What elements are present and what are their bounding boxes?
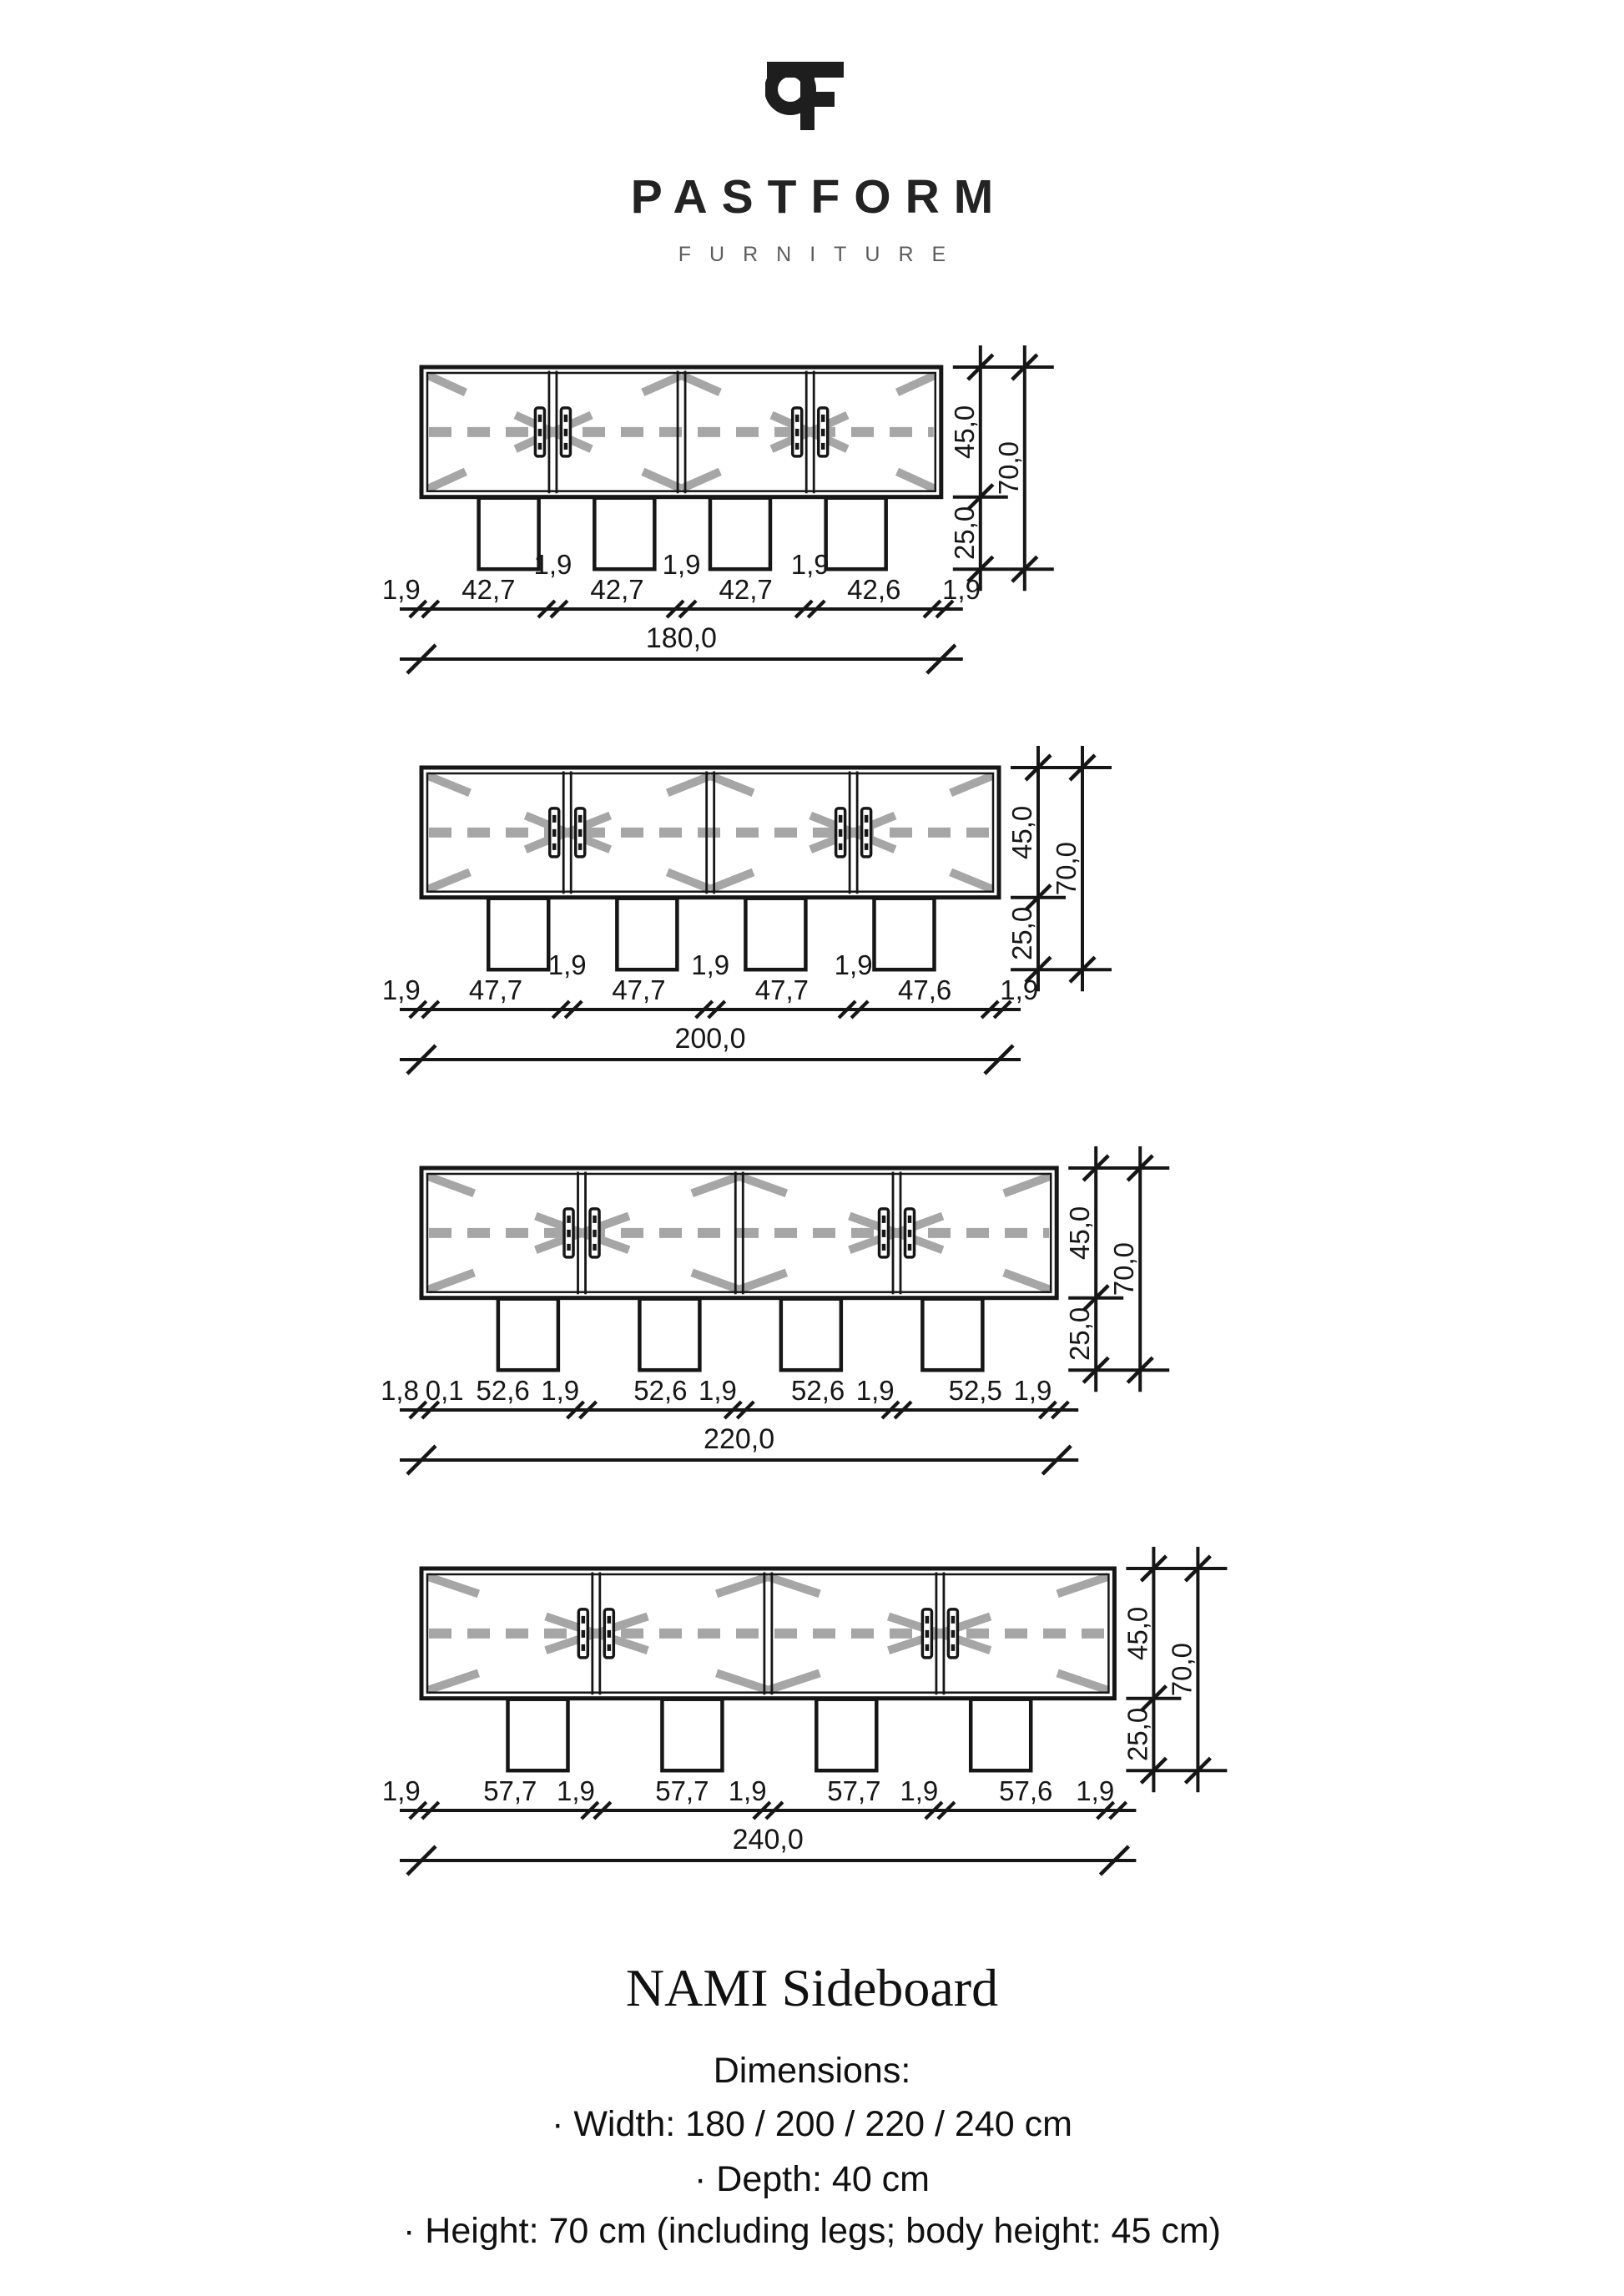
segment-dim-label: 1,9 (791, 549, 830, 580)
segment-dim-label: 1,9 (382, 974, 421, 1005)
segment-dim-label: 1,9 (1014, 1375, 1052, 1406)
segment-dim-label: 42,7 (590, 574, 643, 605)
segment-dim-label: 1,9 (541, 1375, 579, 1406)
segment-dim-label: 47,6 (898, 974, 951, 1005)
segment-dim-label: 1,9 (548, 949, 587, 980)
height-dim-label: 70,0 (1108, 1242, 1139, 1296)
total-width-label: 200,0 (674, 1023, 745, 1055)
height-dim-label: 25,0 (1006, 907, 1037, 960)
segment-dim-label: 1,9 (942, 574, 981, 605)
segment-dim-label: 47,7 (469, 974, 522, 1005)
segment-dim-label: 1,9 (699, 1375, 737, 1406)
cabinet-leg (826, 498, 886, 570)
segment-dim-label: 52,5 (949, 1375, 1002, 1406)
spec-height: · Height: 70 cm (including legs; body he… (0, 2211, 1624, 2252)
segment-dim-label: 52,6 (477, 1375, 530, 1406)
cabinet-leg (971, 1699, 1031, 1771)
cabinet-leg (488, 899, 548, 970)
drawing-240: 45,025,070,01,957,71,957,71,957,71,957,6… (382, 1547, 1228, 1875)
cabinet-leg (781, 1299, 841, 1371)
segment-dim-label: 47,7 (612, 974, 665, 1005)
cabinet-leg (745, 899, 805, 970)
segment-dim-label: 1,9 (1000, 974, 1038, 1005)
total-width-label: 180,0 (646, 622, 717, 654)
specs-heading: Dimensions: (0, 2051, 1624, 2092)
height-dim-label: 45,0 (1064, 1206, 1095, 1260)
segment-dim-label: 57,7 (655, 1775, 709, 1806)
segment-dim-label: 57,7 (483, 1775, 537, 1806)
segment-dim-label: 1,9 (691, 949, 729, 980)
segment-dim-label: 42,6 (847, 574, 900, 605)
height-dim-label: 25,0 (1064, 1307, 1095, 1361)
segment-dim-label: 1,9 (382, 1775, 421, 1806)
segment-dim-label: 47,7 (755, 974, 809, 1005)
segment-dim-label: 52,6 (791, 1375, 845, 1406)
cabinet-leg (498, 1299, 558, 1371)
segment-dim-label: 1,9 (900, 1775, 938, 1806)
cabinet-leg (479, 498, 539, 570)
drawing-220: 45,025,070,01,80,152,61,952,61,952,61,95… (381, 1146, 1169, 1474)
cabinet-leg (617, 899, 677, 970)
total-width-label: 240,0 (733, 1824, 804, 1855)
height-dim-label: 70,0 (1051, 842, 1082, 895)
height-dim-label: 25,0 (1122, 1708, 1152, 1761)
height-dim-label: 45,0 (1006, 806, 1037, 859)
cabinet-leg (922, 1299, 982, 1371)
spec-depth: · Depth: 40 cm (0, 2159, 1624, 2200)
page-title: NAMI Sideboard (0, 1957, 1624, 2019)
segment-dim-label: 1,9 (533, 549, 572, 580)
drawings-canvas: 45,025,070,01,942,71,942,71,942,71,942,6… (0, 0, 1624, 2296)
cabinet-leg (710, 498, 770, 570)
height-dim-label: 70,0 (1166, 1643, 1197, 1696)
height-dim-label: 25,0 (949, 506, 980, 560)
drawing-180: 45,025,070,01,942,71,942,71,942,71,942,6… (382, 345, 1054, 673)
cabinet-leg (508, 1699, 568, 1771)
segment-dim-label: 57,6 (999, 1775, 1052, 1806)
segment-dim-label: 1,9 (856, 1375, 895, 1406)
segment-dim-label: 42,7 (719, 574, 773, 605)
height-dim-label: 45,0 (949, 405, 980, 459)
segment-dim-label: 1,9 (663, 549, 701, 580)
height-dim-label: 70,0 (993, 441, 1024, 495)
segment-dim-label: 1,8 (381, 1375, 419, 1406)
segment-dim-label: 1,9 (835, 949, 873, 980)
segment-dim-label: 1,9 (382, 574, 421, 605)
cabinet-leg (816, 1699, 876, 1771)
segment-dim-label: 1,9 (729, 1775, 767, 1806)
height-dim-label: 45,0 (1122, 1607, 1152, 1660)
cabinet-leg (639, 1299, 699, 1371)
total-width-label: 220,0 (704, 1423, 774, 1455)
drawing-200: 45,025,070,01,947,71,947,71,947,71,947,6… (382, 746, 1112, 1074)
cabinet-leg (662, 1699, 722, 1771)
segment-dim-label: 0,1 (426, 1375, 464, 1406)
cabinet-leg (594, 498, 654, 570)
cabinet-leg (875, 899, 935, 970)
segment-dim-label: 1,9 (557, 1775, 595, 1806)
spec-sheet-page: PASTFORM FURNITURE 45,025,070,01,942,71,… (0, 0, 1624, 2296)
segment-dim-label: 42,7 (461, 574, 515, 605)
spec-width: · Width: 180 / 200 / 220 / 240 cm (0, 2104, 1624, 2145)
segment-dim-label: 57,7 (827, 1775, 880, 1806)
segment-dim-label: 1,9 (1076, 1775, 1114, 1806)
segment-dim-label: 52,6 (633, 1375, 687, 1406)
